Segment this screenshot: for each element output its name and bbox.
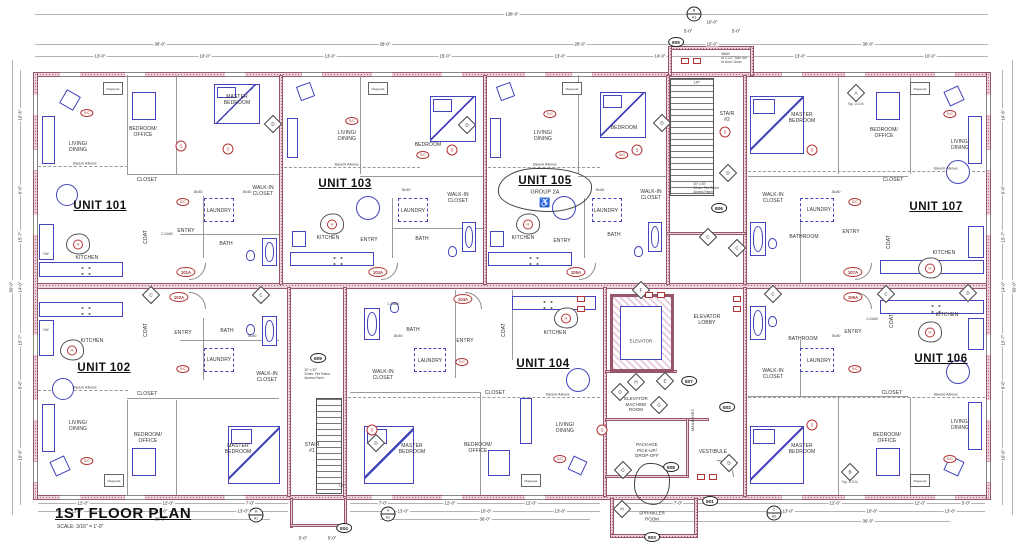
window [442, 495, 462, 500]
door-size-label: 2-24x80 [387, 302, 399, 306]
keynote-diamond: G [650, 396, 668, 414]
room-label: ENTRY [456, 338, 473, 344]
elevator-car [620, 306, 662, 360]
magiepak-closet: Magiepak [910, 82, 930, 95]
beam-above-label: Beam Above [934, 166, 958, 171]
self-closer-tag: S/C [615, 151, 628, 159]
dimension-label: 14'-0" [654, 54, 667, 59]
sofa [968, 116, 982, 164]
window [33, 400, 38, 420]
dimension-label: 10'-0" [706, 20, 719, 25]
window [60, 72, 80, 77]
dimension-label: 13'-0" [397, 509, 410, 514]
dimension-label: 16'-6" [18, 449, 23, 462]
up-label: UP [694, 80, 700, 85]
dimension-label: 12'-0" [444, 501, 457, 506]
window [33, 215, 38, 235]
self-closer-tag: S/C [848, 365, 861, 373]
access-panel-note: 30" x 30" 20min. Fire Rated Access Panel [304, 368, 329, 380]
magiepak-closet: Magiepak [368, 82, 388, 95]
magiepak-closet: Magiepak [910, 474, 930, 487]
dimension-label: 16'-6" [1001, 109, 1006, 122]
sofa [968, 402, 982, 450]
hood-marker: H [561, 313, 571, 323]
room-label: KITCHEN [81, 338, 104, 344]
range-hood-cloud: H [918, 322, 942, 343]
dimension-label: 36'-0" [479, 517, 492, 522]
partition [838, 75, 839, 174]
bathtub [750, 222, 766, 256]
unit-demising-wall [743, 75, 747, 285]
equipment-box [697, 474, 705, 480]
beam-above-line [748, 397, 985, 398]
dishwasher-label: DW [43, 328, 48, 332]
self-closer-tag: S/C [176, 365, 189, 373]
room-label: WALK-IN CLOSET [372, 369, 393, 382]
beam-above-line [284, 167, 420, 168]
sofa [490, 118, 501, 158]
dimension-label: 5'-0" [327, 536, 337, 541]
refrigerator [490, 231, 504, 247]
smoke-detector-marker: S [223, 144, 234, 155]
room-label: ENTRY [177, 228, 194, 234]
window [33, 150, 38, 170]
partition [127, 400, 128, 495]
dimension-label: 6'-6" [18, 380, 23, 390]
stair-treads [316, 398, 342, 494]
stair-treads [670, 78, 714, 196]
sofa [287, 118, 298, 158]
range-hood-cloud: H [554, 308, 578, 329]
armchair [568, 456, 588, 476]
room-label: WALK-IN CLOSET [762, 368, 783, 381]
room-label: WALK-IN CLOSET [762, 192, 783, 205]
dimension-label: 13'-0" [94, 54, 107, 59]
toilet [448, 246, 457, 257]
kitchen-counter [39, 320, 54, 356]
dimension-line [35, 44, 988, 45]
elevation-callout: E06 [711, 203, 727, 213]
up-label: UP [339, 483, 345, 488]
unit-label: UNIT 106 [914, 353, 967, 365]
range-hood-cloud: H [516, 214, 540, 235]
desk [132, 448, 156, 476]
dimension-label: 7'-0" [673, 501, 683, 506]
exterior-wall [986, 72, 991, 500]
sprinkler-room-wall [694, 498, 698, 538]
dimension-label: 15'-7" [1001, 231, 1006, 244]
door-size-label: 2-24x80 [161, 232, 173, 236]
armchair [49, 455, 70, 476]
room-label: BEDROOM/ OFFICE [464, 442, 492, 455]
partition [127, 398, 279, 399]
elevator-label: ELEVATOR [630, 338, 652, 343]
bathtub [462, 222, 476, 252]
unit-label: UNIT 103 [318, 178, 371, 190]
drawing-scale: SCALE: 3/16" = 1'-0" [57, 524, 103, 530]
self-closer-tag: S/C [416, 151, 429, 159]
self-closer-tag: S/C [80, 109, 93, 117]
stair-label: STAIR #1 [305, 442, 320, 455]
equipment-box [681, 58, 689, 64]
unit-demising-wall [287, 287, 291, 497]
keynote-diamond: A [847, 84, 865, 102]
stair2-vestibule-wall [750, 46, 754, 76]
beam-above-label: Beam Above [73, 161, 97, 166]
stove-burners [540, 298, 554, 309]
unit-label: UNIT 107 [909, 201, 962, 213]
dimension-line [620, 511, 985, 512]
unit-demising-wall [743, 287, 747, 497]
bathtub [648, 222, 662, 252]
window [935, 495, 955, 500]
dimension-label: 16'-6" [1001, 449, 1006, 462]
dimension-label: 13'-0" [944, 509, 957, 514]
partition [584, 198, 585, 258]
dimension-label: 138'-0" [505, 12, 520, 17]
smoke-detector-marker: S [176, 141, 187, 152]
dimension-label: 13'-0" [554, 509, 567, 514]
keynote-diamond: B [841, 463, 859, 481]
armchair [496, 82, 515, 101]
magiepak-closet: Magiepak [104, 474, 124, 487]
dimension-label: 10'-0" [199, 54, 212, 59]
room-label: BATH [219, 241, 232, 247]
bathtub [262, 238, 277, 266]
stove-burners [78, 264, 92, 275]
hood-marker: H [67, 345, 77, 355]
partition [176, 400, 177, 495]
dimension-line [35, 56, 988, 57]
smoke-detector-marker: S [720, 127, 731, 138]
room-label: KITCHEN [544, 330, 567, 336]
room-label: CLOSET [485, 390, 506, 396]
dimension-label: 10'-0" [866, 509, 879, 514]
room-label: BATH [415, 236, 428, 242]
machine-room-label: ELEVATOR MACHINE ROOM [624, 396, 648, 413]
room-label: KITCHEN [317, 235, 340, 241]
keynote-diamond: C [699, 228, 717, 246]
keynote-diamond: H [627, 373, 645, 391]
room-label: MASTER BEDROOM [399, 443, 426, 456]
beam-above-label: Beam Above [934, 392, 958, 397]
sofa [42, 116, 55, 164]
equipment-box [709, 474, 717, 480]
elevation-callout: E03 [644, 532, 660, 542]
equipment-box [733, 296, 741, 302]
corridor-wall [35, 283, 988, 289]
smoke-detector-marker: S [807, 145, 818, 156]
toilet [634, 246, 643, 257]
dimension-label: 5'-0" [298, 536, 308, 541]
toilet [768, 238, 777, 249]
room-label: ENTRY [174, 330, 191, 336]
window [986, 215, 991, 235]
door-tag: 102A [169, 292, 188, 302]
toilet [768, 316, 777, 327]
beam-above-label: Beam Above [73, 385, 97, 390]
room-label: BEDROOM/ OFFICE [134, 432, 162, 445]
dimension-label: 12'-0" [525, 501, 538, 506]
elevator-lobby-label: ELEVATOR LOBBY [694, 314, 721, 327]
dimension-label: 6'-6" [1001, 185, 1006, 195]
dimension-label: 5'-0" [683, 29, 693, 34]
door-size-label: 36x80 [394, 334, 403, 338]
self-closer-tag: S/C [80, 457, 93, 465]
dimension-label: 15'-0" [439, 54, 452, 59]
window [60, 495, 80, 500]
equipment-box [645, 292, 653, 298]
room-label: BATHROOM [788, 336, 817, 342]
mailboxes-label: MAILBOXES [691, 409, 695, 431]
room-label: LAUNDRY [418, 358, 443, 364]
elevation-callout: E01 [702, 496, 718, 506]
window [442, 72, 462, 77]
beam-above-label: Beam Above [546, 392, 570, 397]
dimension-label: 13'-0" [554, 54, 567, 59]
window [33, 462, 38, 482]
dimension-label: 16'-6" [18, 109, 23, 122]
dining-table [52, 378, 74, 400]
exterior-wall [33, 72, 38, 500]
hood-marker: H [523, 219, 533, 229]
window [33, 95, 38, 115]
dimension-label: 15'-7" [18, 334, 23, 347]
dimension-label: 10'-0" [924, 54, 937, 59]
sidelite-note: 36x80 w/ 2-1/2" Side Lite w/ Auto Closer [721, 52, 747, 64]
room-label: KITCHEN [76, 255, 99, 261]
room-label: MASTER BEDROOM [789, 112, 816, 125]
door-size-label: 2-24x80 [866, 317, 878, 321]
partition [455, 290, 456, 378]
door-size-label: 36x80 [248, 334, 257, 338]
self-closer-tag: S/C [848, 198, 861, 206]
sofa [520, 398, 532, 444]
window [372, 495, 392, 500]
dimension-label: 10'-0" [480, 509, 493, 514]
window [225, 72, 245, 77]
stair2-vestibule-wall [668, 46, 754, 50]
dimension-label: 10'-0" [706, 42, 719, 47]
room-label: LAUNDRY [807, 207, 832, 213]
magiepak-closet: Magiepak [103, 82, 123, 95]
window [33, 335, 38, 355]
room-label: LIVING/ DINING [951, 139, 969, 152]
beam-above-line [38, 166, 128, 167]
dimension-label: 7'-0" [245, 501, 255, 506]
bathtub [262, 316, 277, 346]
window [525, 72, 545, 77]
typ-uon-note: Typ. U.O.N. [848, 102, 865, 106]
dimension-label: 15'-7" [1001, 334, 1006, 347]
magiepak-closet: Magiepak [521, 474, 541, 487]
partition [180, 234, 279, 235]
door-size-label: 36x80 [402, 188, 411, 192]
room-label: ENTRY [844, 329, 861, 335]
window [986, 462, 991, 482]
dimension-label: 7'-0" [378, 501, 388, 506]
window [125, 495, 145, 500]
room-label: COAT [143, 323, 149, 337]
dimension-label: 12'-0" [914, 501, 927, 506]
smoke-detector-marker: S [807, 420, 818, 431]
section-reference: CA2 [767, 506, 782, 521]
room-label: CLOSET [137, 177, 158, 183]
stove-burners [78, 304, 92, 315]
desk [876, 92, 900, 120]
stair2-vestibule-wall [668, 46, 672, 76]
window [782, 72, 802, 77]
range-hood-cloud: H [66, 234, 90, 255]
room-label: MASTER BEDROOM [225, 443, 252, 456]
equipment-box [577, 306, 585, 312]
door-size-label: 36x80 [596, 188, 605, 192]
unit-demising-wall [343, 287, 347, 497]
window [372, 72, 392, 77]
dimension-label: 5'-0" [731, 29, 741, 34]
self-closer-tag: S/C [176, 198, 189, 206]
equipment-box [577, 296, 585, 302]
room-label: ENTRY [553, 238, 570, 244]
vestibule-label: VESTIBULE [699, 449, 727, 455]
armchair [296, 82, 315, 101]
access-panel-note: 30" x 30" 20min. Fire Rated Access Panel [693, 182, 718, 194]
self-closer-tag: S/C [543, 110, 556, 118]
room-label: BATH [607, 232, 620, 238]
window [845, 72, 865, 77]
hood-marker: H [73, 239, 83, 249]
dimension-label: 28'-0" [574, 42, 587, 47]
room-label: COAT [143, 230, 149, 244]
refrigerator [292, 231, 306, 247]
stair-label: STAIR #2 [720, 111, 735, 124]
dimension-label: 36'-0" [862, 42, 875, 47]
beam-above-label: Beam Above [533, 162, 557, 167]
drawing-title: 1ST FLOOR PLAN [55, 505, 191, 522]
room-label: COAT [886, 235, 892, 249]
armchair [59, 89, 81, 111]
beam-above-line [348, 397, 600, 398]
refrigerator [968, 226, 984, 258]
partition [176, 75, 177, 174]
floor-plan-sheet: H H H H H H H UNIT 101 UNIT 102 UNIT 103… [0, 0, 1024, 547]
room-label: BATHROOM [789, 234, 818, 240]
partition [127, 174, 279, 175]
room-label: BEDROOM [611, 125, 638, 131]
room-label: LAUNDRY [401, 208, 426, 214]
room-label: BEDROOM [415, 142, 442, 148]
window [125, 72, 145, 77]
dimension-label: 13'-0" [782, 509, 795, 514]
unit-label: UNIT 101 [73, 200, 126, 212]
sofa [42, 404, 55, 452]
partition [360, 176, 483, 177]
room-label: MASTER BEDROOM [789, 443, 816, 456]
room-label: LIVING/ DINING [69, 141, 87, 154]
sprinkler-room-wall [610, 498, 614, 538]
elevation-callout: E08 [663, 462, 679, 472]
dining-table [566, 368, 590, 392]
section-reference: AA1 [249, 508, 264, 523]
window [986, 400, 991, 420]
equipment-box [693, 58, 701, 64]
room-label: COAT [501, 323, 507, 337]
room-label: KITCHEN [936, 312, 959, 318]
partition [360, 75, 361, 174]
bed [750, 96, 804, 154]
self-closer-tag: S/C [943, 110, 956, 118]
armchair [943, 85, 964, 106]
smoke-detector-marker: S [447, 145, 458, 156]
toilet [246, 250, 255, 261]
door-size-label: 36x80 [832, 190, 841, 194]
door-size-label: 36x80 [194, 190, 203, 194]
unit-label: UNIT 102 [77, 362, 130, 374]
self-closer-tag: S/C [345, 117, 358, 125]
desk [132, 92, 156, 120]
room-label: BATH [406, 327, 419, 333]
elevation-callout: E02 [719, 402, 735, 412]
room-label: LIVING/ DINING [556, 422, 574, 435]
room-label: BEDROOM/ OFFICE [129, 126, 157, 139]
dimension-label: 13'-0" [324, 54, 337, 59]
smoke-detector-marker: S [632, 145, 643, 156]
magiepak-closet: Magiepak [562, 82, 582, 95]
self-closer-tag: S/C [553, 455, 566, 463]
dimension-label: 6'-6" [1001, 380, 1006, 390]
dimension-label: 60'-0" [9, 281, 14, 294]
keynote-diamond: D [719, 164, 737, 182]
partition [127, 75, 128, 174]
dishwasher-label: DW [43, 252, 48, 256]
dimension-label: 14'-0" [1001, 281, 1006, 294]
dimension-label: 12'-0" [829, 501, 842, 506]
elevation-callout: E07 [681, 376, 697, 386]
room-label: ENTRY [360, 237, 377, 243]
window [302, 72, 322, 77]
accessible-icon: ♿ [539, 198, 550, 209]
dimension-label: 13'-0" [237, 509, 250, 514]
window [935, 72, 955, 77]
hood-marker: H [925, 327, 935, 337]
elevation-callout: E09 [310, 353, 326, 363]
bathtub [364, 308, 380, 340]
room-label: CLOSET [883, 177, 904, 183]
package-room-wall [686, 418, 689, 478]
section-reference: AA1 [381, 507, 396, 522]
partition [838, 398, 839, 495]
room-label: COAT [889, 314, 895, 328]
equipment-box [657, 292, 665, 298]
unit-demising-wall [603, 287, 607, 497]
room-label: MASTER BEDROOM [224, 94, 251, 107]
room-label: KITCHEN [933, 250, 956, 256]
window [986, 335, 991, 355]
room-label: LIVING/ DINING [534, 130, 552, 143]
room-label: LAUNDRY [807, 358, 832, 364]
bathtub [750, 306, 766, 340]
beam-above-label: Beam Above [335, 162, 359, 167]
section-reference: BA1 [687, 7, 702, 22]
dimension-label: 5'-0" [961, 501, 971, 506]
door-size-label: 36x80 [243, 190, 252, 194]
dimension-label: 60'-0" [1012, 281, 1017, 294]
hood-marker: H [327, 219, 337, 229]
dimension-label: 28'-0" [379, 42, 392, 47]
room-label: LIVING/ DINING [338, 130, 356, 143]
room-label: KITCHEN [512, 235, 535, 241]
room-label: ENTRY [842, 229, 859, 235]
